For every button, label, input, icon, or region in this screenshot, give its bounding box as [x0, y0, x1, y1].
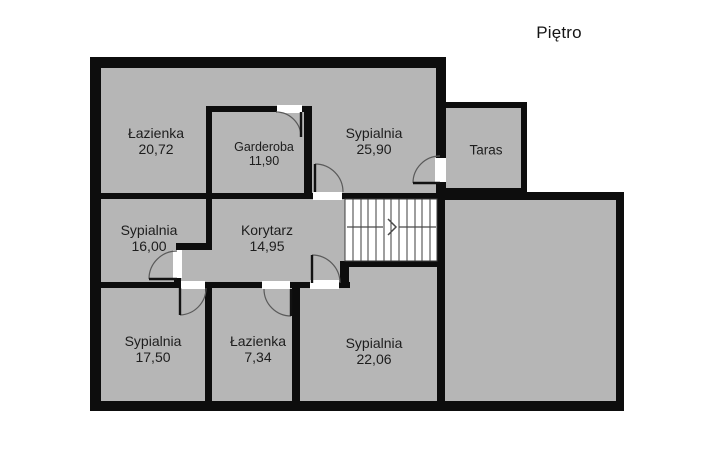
room-label-lazienka-bottom: Łazienka 7,34: [230, 333, 286, 365]
floor-plan-canvas: Piętro Łazienka 20,72 Garderoba 11,90 Sy…: [0, 0, 720, 470]
wall-segment: [90, 193, 446, 199]
room-name: Taras: [469, 143, 502, 158]
room-name: Sypialnia: [346, 335, 403, 351]
wall-segment: [437, 192, 445, 403]
room-area: 11,90: [234, 154, 294, 168]
room-area: 20,72: [128, 141, 184, 157]
floor-plan-drawing: [0, 0, 720, 470]
wall-segment: [340, 261, 349, 288]
room-label-taras: Taras: [469, 143, 502, 158]
room-label-lazienka-top: Łazienka 20,72: [128, 125, 184, 157]
door-opening: [310, 280, 339, 289]
room-name: Korytarz: [241, 222, 293, 238]
wall-segment: [90, 401, 624, 411]
room-area: 7,34: [230, 349, 286, 365]
wall-segment: [304, 106, 312, 199]
room-label-garderoba: Garderoba 11,90: [234, 140, 294, 168]
wall-segment: [176, 243, 212, 250]
room-area: 16,00: [121, 238, 178, 254]
door-opening: [277, 105, 302, 113]
room-name: Sypialnia: [125, 333, 182, 349]
stairs: [345, 199, 437, 261]
room-name: Łazienka: [128, 125, 184, 141]
room-area: 25,90: [346, 141, 403, 157]
room-area: 22,06: [346, 351, 403, 367]
door-opening: [181, 281, 205, 289]
room-name: Sypialnia: [346, 125, 403, 141]
door-opening: [173, 250, 182, 278]
wall-segment: [521, 102, 527, 195]
room-label-korytarz: Korytarz 14,95: [241, 222, 293, 254]
wall-segment: [616, 192, 624, 411]
wall-segment: [437, 192, 624, 200]
wall-segment: [90, 57, 101, 411]
wall-segment: [206, 199, 212, 246]
wall-segment: [206, 106, 212, 199]
floor-title: Piętro: [536, 23, 582, 43]
room-name: Sypialnia: [121, 222, 178, 238]
door-opening: [262, 281, 290, 289]
room-name: Łazienka: [230, 333, 286, 349]
wall-segment: [205, 288, 212, 403]
room-label-sypialnia-top: Sypialnia 25,90: [346, 125, 403, 157]
room-label-sypialnia-mid: Sypialnia 16,00: [121, 222, 178, 254]
room-name: Garderoba: [234, 140, 294, 154]
wall-segment: [90, 57, 446, 68]
room-area: 14,95: [241, 238, 293, 254]
wall-segment: [446, 102, 527, 108]
wall-segment: [292, 288, 300, 403]
room-area: 17,50: [125, 349, 182, 365]
door-opening: [435, 158, 446, 182]
wall-segment: [347, 261, 444, 267]
room-label-sypialnia-bottom-left: Sypialnia 17,50: [125, 333, 182, 365]
room-label-sypialnia-bottom-mid: Sypialnia 22,06: [346, 335, 403, 367]
door-opening: [313, 192, 342, 200]
